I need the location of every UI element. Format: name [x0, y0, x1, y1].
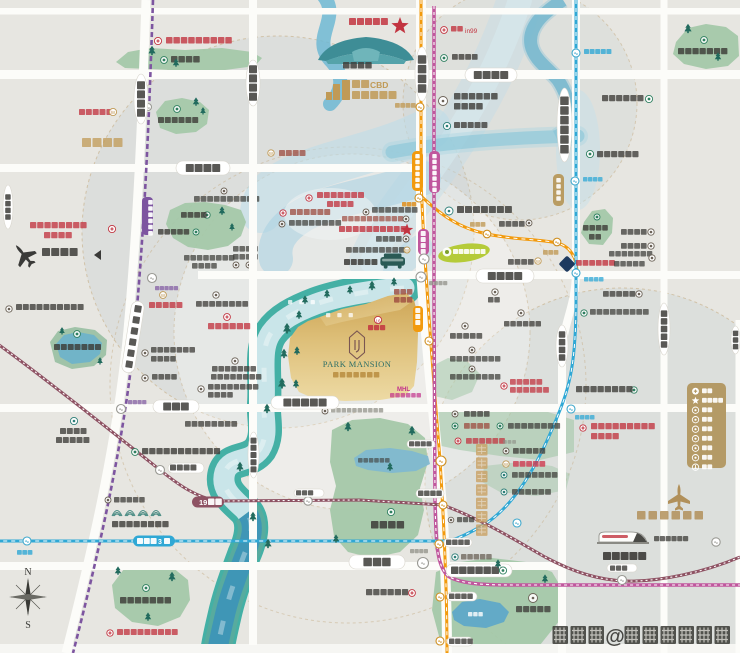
svg-text:CBD: CBD — [370, 80, 388, 90]
svg-text:@: @ — [605, 626, 625, 648]
svg-text:N: N — [24, 567, 31, 578]
svg-text:MHL: MHL — [397, 387, 410, 393]
svg-text:19: 19 — [199, 498, 207, 507]
svg-text:16: 16 — [375, 319, 381, 324]
svg-text:3: 3 — [158, 539, 162, 546]
svg-text:S: S — [25, 620, 31, 631]
svg-text:in99: in99 — [465, 28, 478, 35]
svg-text:PARK MANSION: PARK MANSION — [323, 359, 392, 369]
